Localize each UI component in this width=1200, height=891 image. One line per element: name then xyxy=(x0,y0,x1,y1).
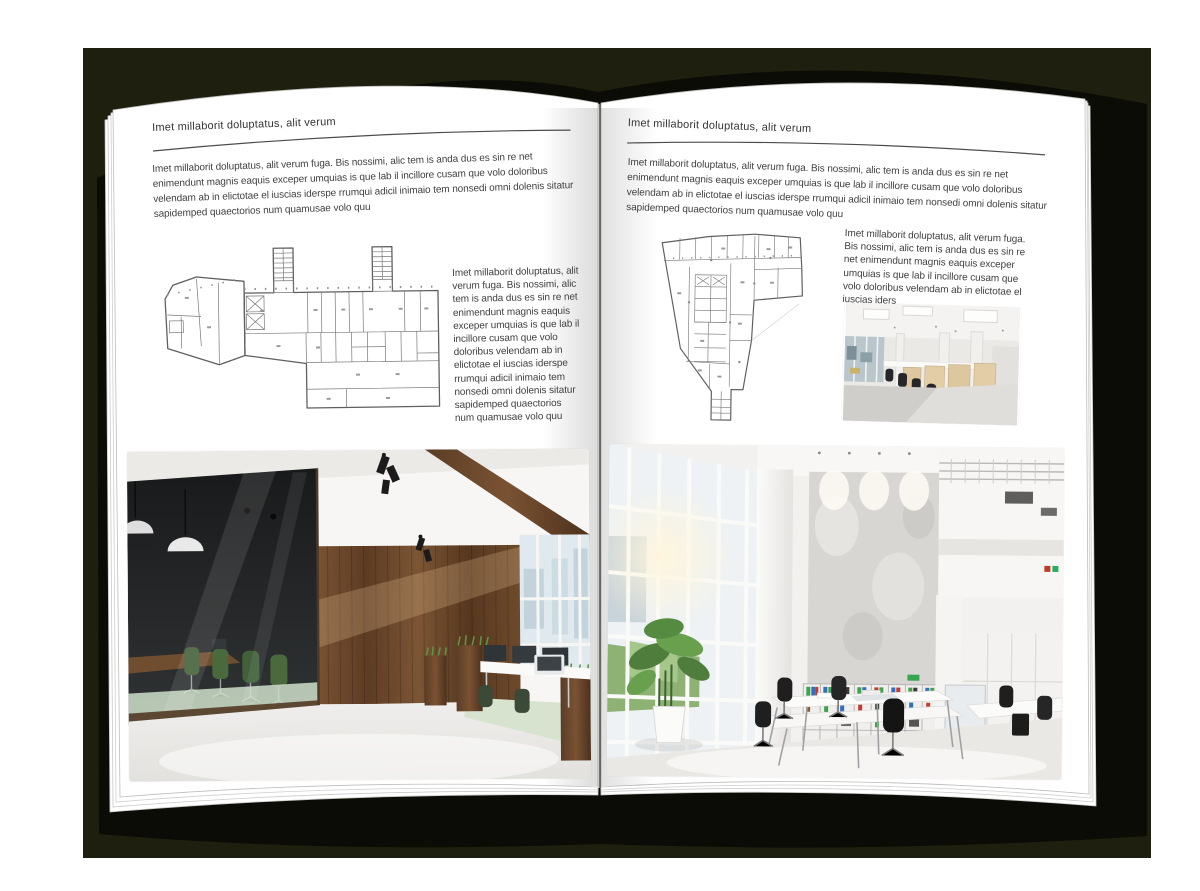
office-photo-meeting-room xyxy=(127,448,591,781)
wood-wall xyxy=(316,545,521,704)
office-photo-cubicles xyxy=(841,303,1021,426)
office-photo-atrium xyxy=(607,444,1065,780)
mezzanine xyxy=(938,447,1064,598)
column xyxy=(755,469,794,777)
concrete-wall xyxy=(807,470,939,685)
right-side-column: Imet millaborit doluptatus, alit verum f… xyxy=(842,227,1033,313)
floor-plan-left xyxy=(155,234,448,423)
floor-plan-right xyxy=(649,223,812,432)
left-side-column: Imet millaborit doluptatus, alit verum f… xyxy=(452,265,583,426)
glass-lobby xyxy=(844,336,885,382)
meeting-room xyxy=(127,468,319,725)
plan-label-marks xyxy=(676,245,792,379)
